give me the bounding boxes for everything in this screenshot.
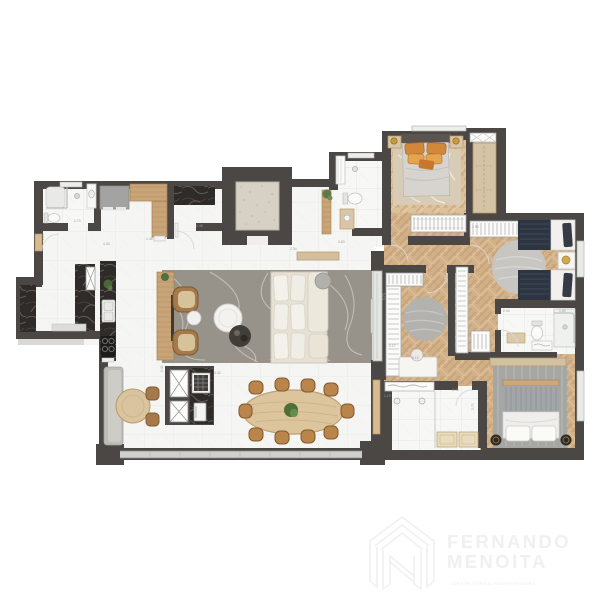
svg-text:FERNANDO: FERNANDO bbox=[447, 531, 571, 552]
svg-text:6.12: 6.12 bbox=[412, 356, 419, 360]
svg-text:2.34: 2.34 bbox=[290, 247, 297, 251]
svg-text:MENOITA: MENOITA bbox=[447, 551, 548, 572]
svg-text:4.34: 4.34 bbox=[103, 242, 110, 246]
svg-text:1.90: 1.90 bbox=[472, 225, 479, 229]
svg-text:1.48: 1.48 bbox=[196, 224, 203, 228]
svg-text:1.50: 1.50 bbox=[559, 309, 566, 313]
svg-text:0.60: 0.60 bbox=[338, 240, 345, 244]
svg-text:1.45: 1.45 bbox=[146, 237, 153, 241]
svg-text:6.40: 6.40 bbox=[452, 388, 459, 392]
svg-text:2.20: 2.20 bbox=[41, 233, 45, 240]
svg-text:3.73: 3.73 bbox=[382, 293, 386, 300]
svg-text:1.19: 1.19 bbox=[384, 394, 391, 398]
svg-text:2.40: 2.40 bbox=[160, 365, 164, 372]
svg-text:CONSTRUTORA E INCORPORADORA: CONSTRUTORA E INCORPORADORA bbox=[450, 581, 535, 586]
svg-text:2.70: 2.70 bbox=[471, 403, 475, 410]
svg-text:1.70: 1.70 bbox=[74, 219, 81, 223]
svg-text:4.32: 4.32 bbox=[214, 371, 221, 375]
svg-text:2.44: 2.44 bbox=[503, 309, 510, 313]
svg-text:0.17: 0.17 bbox=[389, 344, 396, 348]
